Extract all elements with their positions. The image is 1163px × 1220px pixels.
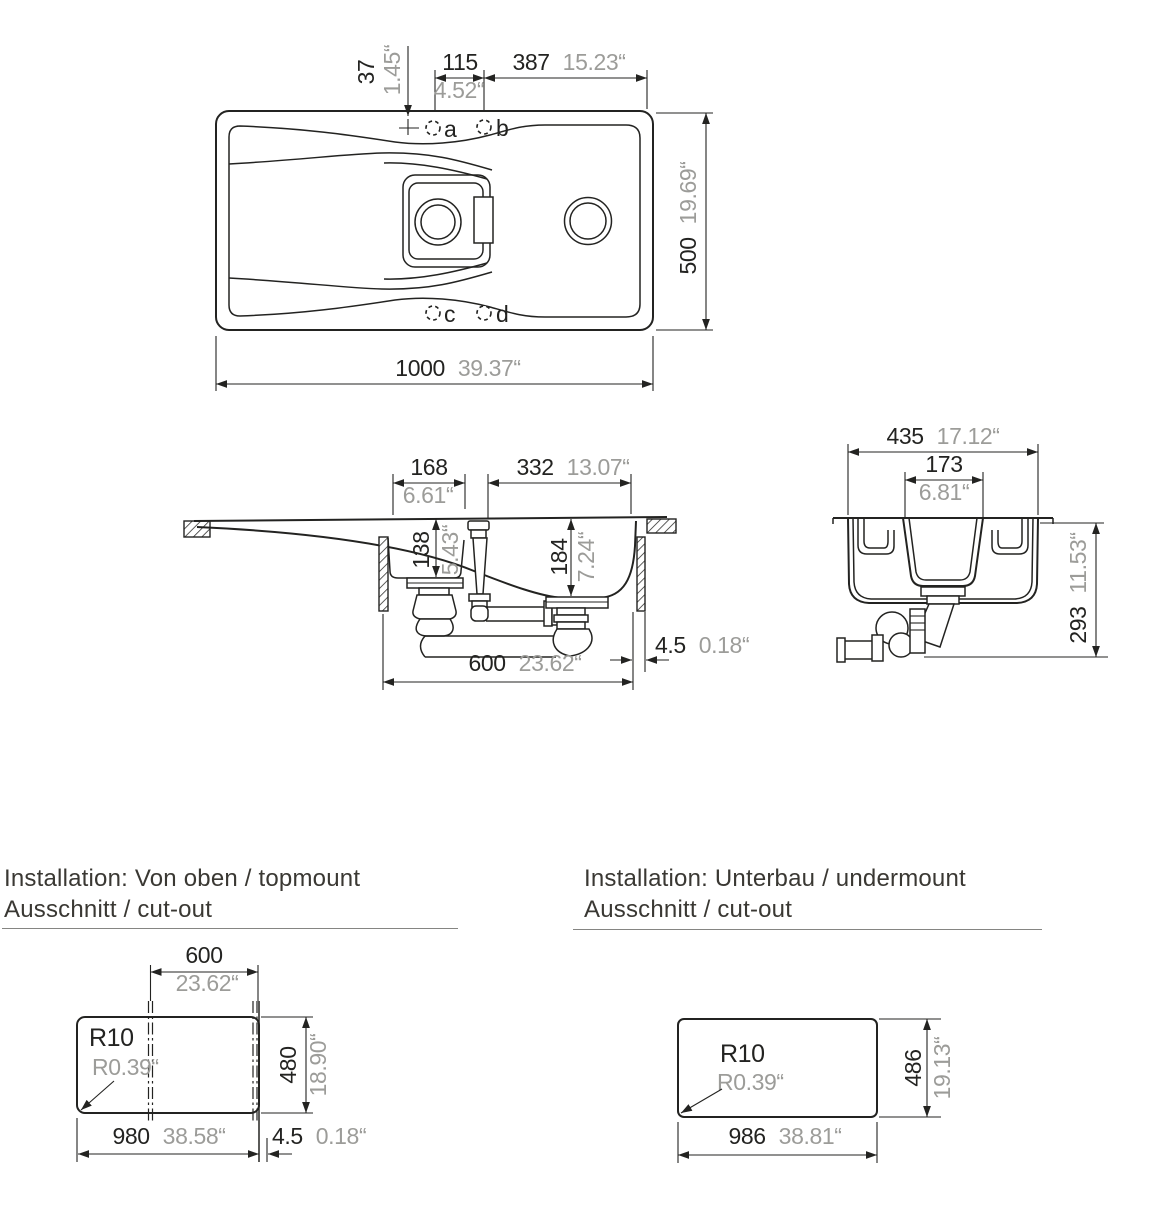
dim-387-label: 387 15.23“ bbox=[512, 49, 625, 75]
dim-138-mm: 138 bbox=[408, 531, 434, 568]
sink-long-section-figure: 168 6.61“ 332 13.07“ 138 5.43“ 184 7.24“… bbox=[165, 450, 775, 700]
hole-b-label: b bbox=[496, 115, 508, 141]
dim-hole-pitch-115: 115 4.52“ bbox=[434, 49, 484, 110]
dim-45-inch: 0.18“ bbox=[316, 1123, 366, 1149]
undermount-heading-line2: Ausschnitt / cut-out bbox=[584, 894, 966, 925]
dim-edge-gap-45: 4.5 0.18“ bbox=[610, 612, 749, 672]
dim-293-mm: 293 bbox=[1065, 606, 1091, 643]
corner-radius-callout: R10 R0.39“ bbox=[681, 1040, 784, 1113]
dim-115-mm: 115 bbox=[442, 49, 477, 75]
dim-gap-45: 4.5 0.18“ bbox=[267, 1123, 366, 1162]
dim-293-label: 293 11.53“ bbox=[1065, 532, 1091, 643]
drain-left bbox=[415, 199, 461, 245]
dim-600-inch: 23.62“ bbox=[519, 650, 582, 676]
dim-main-depth-184: 184 7.24“ bbox=[546, 519, 599, 596]
dim-600-mm: 600 bbox=[185, 945, 222, 968]
dim-986-inch: 38.81“ bbox=[779, 1123, 842, 1149]
radius-inch: R0.39“ bbox=[717, 1069, 784, 1095]
topmount-heading-line2: Ausschnitt / cut-out bbox=[4, 894, 360, 925]
dim-1000-label: 1000 39.37“ bbox=[395, 355, 520, 381]
dim-height-293: 293 11.53“ bbox=[1040, 523, 1104, 657]
hole-c-label: c bbox=[444, 301, 455, 327]
bowl-connector bbox=[474, 197, 493, 243]
dim-980-label: 980 38.58“ bbox=[112, 1123, 225, 1149]
dim-45-mm: 4.5 bbox=[655, 632, 686, 658]
drain-flange bbox=[921, 587, 965, 596]
dim-293-inch: 11.53“ bbox=[1065, 532, 1091, 593]
radius-inch: R0.39“ bbox=[92, 1054, 159, 1080]
tap-hole-d bbox=[477, 306, 491, 320]
tap-hole-a bbox=[426, 121, 440, 135]
dim-width-980: 980 38.58“ bbox=[77, 1118, 259, 1162]
dim-435-inch: 17.12“ bbox=[937, 425, 1000, 449]
countertop-right bbox=[647, 519, 676, 533]
dim-500-mm: 500 bbox=[675, 237, 701, 274]
tap-hole-b bbox=[477, 120, 491, 134]
topmount-heading-line1: Installation: Von oben / topmount bbox=[4, 863, 360, 894]
topmount-heading: Installation: Von oben / topmount Aussch… bbox=[4, 863, 360, 925]
undermount-heading: Installation: Unterbau / undermount Auss… bbox=[584, 863, 966, 925]
undermount-divider bbox=[573, 929, 1042, 930]
topmount-divider bbox=[2, 928, 458, 929]
dim-45-inch: 0.18“ bbox=[699, 632, 749, 658]
dim-37-inch: 1.45“ bbox=[379, 45, 405, 95]
overflow-pipe bbox=[473, 538, 487, 594]
radius-mm: R10 bbox=[720, 1040, 765, 1068]
outlet-flange bbox=[837, 638, 845, 662]
dim-bowl-173: 173 6.81“ bbox=[905, 451, 983, 519]
undermount-heading-line1: Installation: Unterbau / undermount bbox=[584, 863, 966, 894]
dim-45-mm: 4.5 bbox=[272, 1123, 303, 1149]
dim-hole-edge-387: 387 15.23“ bbox=[484, 49, 647, 109]
dim-500-inch: 19.69“ bbox=[675, 161, 701, 224]
dim-height-486: 486 19.13“ bbox=[879, 1019, 955, 1117]
sink-outline bbox=[216, 111, 653, 330]
drainboard-contour-top bbox=[229, 153, 492, 170]
tap-hole-c bbox=[426, 306, 440, 320]
dim-184-mm: 184 bbox=[546, 538, 572, 576]
overflow-pipe-cap bbox=[468, 521, 489, 530]
hole-a-label: a bbox=[444, 116, 457, 142]
dim-332-inch: 13.07“ bbox=[567, 454, 630, 480]
dim-45-label: 4.5 0.18“ bbox=[655, 632, 749, 658]
dim-332-label: 332 13.07“ bbox=[516, 454, 629, 480]
dim-37-mm: 37 bbox=[353, 60, 379, 85]
sink-top-view-figure: a b c d 37 1.45“ 115 4.52“ 387 15.23“ 50… bbox=[195, 38, 740, 400]
dim-435-label: 435 17.12“ bbox=[886, 425, 999, 449]
dim-486-mm: 486 bbox=[900, 1049, 926, 1086]
topmount-cutout-figure: 600 23.62“ R10 R0.39“ 480 18.90“ 980 38.… bbox=[60, 945, 370, 1175]
dim-bowl-600: 600 23.62“ bbox=[151, 945, 259, 1001]
dim-600-label: 600 23.62“ bbox=[468, 650, 581, 676]
dim-1000-mm: 1000 bbox=[395, 355, 445, 381]
cutout-outline bbox=[678, 1019, 877, 1117]
dim-main-bowl-332: 332 13.07“ bbox=[488, 454, 631, 518]
dim-980-inch: 38.58“ bbox=[163, 1123, 226, 1149]
dim-168-inch: 6.61“ bbox=[403, 482, 453, 508]
dim-1000-inch: 39.37“ bbox=[458, 355, 521, 381]
dim-hole-offset-37: 37 1.45“ bbox=[353, 45, 408, 135]
sink-cross-section-figure: 435 17.12“ 173 6.81“ 293 11.53“ bbox=[825, 425, 1130, 680]
dim-480-mm: 480 bbox=[275, 1046, 301, 1083]
dim-332-mm: 332 bbox=[516, 454, 553, 480]
dim-980-mm: 980 bbox=[112, 1123, 149, 1149]
cabinet-edge-left bbox=[379, 537, 388, 611]
dim-986-label: 986 38.81“ bbox=[728, 1123, 841, 1149]
dim-500-label: 500 19.69“ bbox=[675, 161, 701, 274]
dim-600-mm: 600 bbox=[468, 650, 505, 676]
dim-138-inch: 5.43“ bbox=[437, 525, 463, 575]
dim-45-label: 4.5 0.18“ bbox=[272, 1123, 366, 1149]
dim-600-inch: 23.62“ bbox=[176, 970, 239, 996]
dim-height-480: 480 18.90“ bbox=[261, 1017, 331, 1113]
waste-pipe-end bbox=[421, 636, 426, 657]
dim-width-1000: 1000 39.37“ bbox=[216, 336, 653, 391]
dim-387-inch: 15.23“ bbox=[563, 49, 626, 75]
dim-435-mm: 435 bbox=[886, 425, 923, 449]
dim-173-mm: 173 bbox=[925, 451, 962, 477]
bowl-profile bbox=[903, 518, 983, 586]
drain-right bbox=[565, 198, 612, 245]
dim-depth-500: 500 19.69“ bbox=[656, 113, 713, 330]
hole-d-label: d bbox=[496, 301, 508, 327]
countertop-left bbox=[184, 521, 210, 537]
dim-184-inch: 7.24“ bbox=[573, 532, 599, 582]
dim-387-mm: 387 bbox=[512, 49, 549, 75]
radius-mm: R10 bbox=[89, 1024, 134, 1052]
dim-986-mm: 986 bbox=[728, 1123, 765, 1149]
dim-small-depth-138: 138 5.43“ bbox=[408, 519, 463, 577]
dim-115-inch: 4.52“ bbox=[434, 77, 484, 103]
dim-173-inch: 6.81“ bbox=[919, 479, 969, 505]
corner-radius-callout: R10 R0.39“ bbox=[81, 1024, 159, 1110]
dim-small-bowl-168: 168 6.61“ bbox=[393, 454, 465, 515]
undermount-cutout-figure: R10 R0.39“ 486 19.13“ 986 38.81“ bbox=[655, 1000, 1070, 1180]
technical-drawing-page: a b c d 37 1.45“ 115 4.52“ 387 15.23“ 50… bbox=[0, 0, 1163, 1220]
dim-width-986: 986 38.81“ bbox=[678, 1122, 877, 1163]
dim-168-mm: 168 bbox=[410, 454, 447, 480]
dim-486-inch: 19.13“ bbox=[929, 1037, 955, 1100]
dim-480-inch: 18.90“ bbox=[305, 1034, 331, 1097]
drainboard-contour-bottom bbox=[229, 272, 492, 289]
cabinet-edge-right bbox=[637, 537, 645, 611]
